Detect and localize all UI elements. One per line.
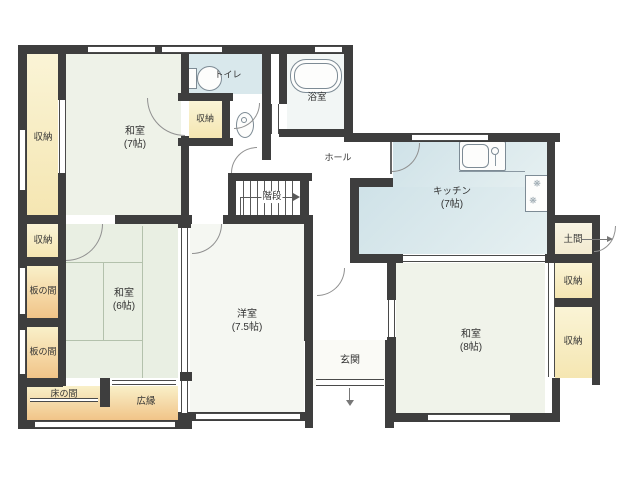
wall <box>262 54 271 160</box>
label-itanoma-2: 板の間 <box>29 346 56 357</box>
door-arc <box>317 268 345 296</box>
floorplan-canvas: ❋ ❋ <box>0 0 640 480</box>
label-genkan: 玄関 <box>340 355 360 368</box>
wall <box>18 378 63 387</box>
wall <box>222 98 230 146</box>
room-washitsu7 <box>66 54 181 215</box>
label-kitchen-size: (7帖) <box>441 199 463 212</box>
label-closet-tall-left: 収納 <box>33 132 52 144</box>
wall <box>181 136 189 222</box>
window <box>162 46 222 53</box>
kitchen-faucet-stem <box>495 155 496 166</box>
label-bath: 浴室 <box>307 92 326 104</box>
sliding-door <box>112 380 176 385</box>
label-youshitsu-name: 洋室 <box>237 309 257 322</box>
wall <box>178 218 191 228</box>
wall <box>228 173 312 181</box>
label-washitsu7-name: 和室 <box>125 126 145 139</box>
stair-arrow-head <box>293 193 300 201</box>
tatami-line <box>142 226 143 378</box>
label-washitsu7-size: (7帖) <box>124 139 146 152</box>
window <box>412 134 488 141</box>
label-washitsu6-name: 和室 <box>114 288 134 301</box>
sliding-door <box>403 255 545 262</box>
label-washitsu8-size: (8帖) <box>460 342 482 355</box>
sliding-door <box>181 228 188 372</box>
wall <box>180 372 192 381</box>
wall <box>350 178 359 262</box>
wall <box>387 254 396 300</box>
kitchen-faucet-icon <box>491 147 499 155</box>
sliding-door <box>388 300 395 337</box>
stair-tread <box>285 181 286 215</box>
tatami-line <box>66 340 142 341</box>
stair-arrow-line <box>240 197 241 215</box>
bathtub-inner-icon <box>294 63 338 89</box>
label-tokonoma: 床の間 <box>50 388 77 399</box>
label-stairs: 階段 <box>261 191 282 203</box>
entrance-sliding-door <box>316 379 384 386</box>
wall <box>547 133 555 262</box>
wall <box>344 45 353 142</box>
label-kitchen-name: キッチン <box>433 186 471 198</box>
label-closet-mid-left: 収納 <box>33 235 52 247</box>
bath-folding-door <box>271 104 279 134</box>
wall <box>279 129 346 137</box>
stove-burner-icon: ❋ <box>529 195 537 206</box>
label-itanoma-1: 板の間 <box>29 285 56 296</box>
window <box>88 46 155 53</box>
label-hiroen: 広縁 <box>136 396 155 408</box>
kitchen-counter-line <box>459 171 525 172</box>
tatami-line <box>103 262 104 340</box>
wall <box>100 378 110 407</box>
stair-tread <box>250 181 251 215</box>
wall <box>387 337 396 413</box>
label-toilet: トイレ <box>214 69 241 80</box>
wall <box>181 54 189 98</box>
window <box>19 130 26 190</box>
label-closet-right-2: 収納 <box>563 336 582 348</box>
window <box>428 414 510 421</box>
sliding-door <box>181 381 188 413</box>
label-doma: 土間 <box>563 234 582 246</box>
door-arc <box>231 147 257 173</box>
closet-sliding-door <box>548 263 555 377</box>
wall <box>550 298 592 307</box>
label-hall: ホール <box>324 152 351 163</box>
label-washitsu8-name: 和室 <box>461 329 481 342</box>
wall <box>223 215 310 224</box>
wall <box>304 215 313 341</box>
wall <box>545 254 592 263</box>
doma-arrow-line <box>582 239 608 240</box>
entry-arrow-head <box>346 400 354 406</box>
window <box>19 268 26 314</box>
stair-tread <box>243 181 244 215</box>
door-arc <box>234 103 260 129</box>
wall <box>279 54 287 104</box>
label-washitsu6-size: (6帖) <box>113 301 135 314</box>
stove-burner-icon: ❋ <box>533 178 541 189</box>
window <box>315 46 342 53</box>
label-youshitsu-size: (7.5帖) <box>232 322 263 335</box>
tatami-line <box>66 262 142 263</box>
window <box>35 421 175 428</box>
doma-arrow-head <box>607 236 613 242</box>
kitchen-sink-bowl-icon <box>462 144 489 168</box>
entry-arrow-line <box>349 388 350 400</box>
label-closet-small: 収納 <box>196 113 214 124</box>
window <box>196 413 300 420</box>
stair-tread <box>257 181 258 215</box>
label-closet-right-1: 収納 <box>563 276 582 288</box>
wall <box>58 54 66 100</box>
closet-sliding-door <box>59 100 66 173</box>
window <box>19 330 26 374</box>
wall <box>58 222 66 386</box>
